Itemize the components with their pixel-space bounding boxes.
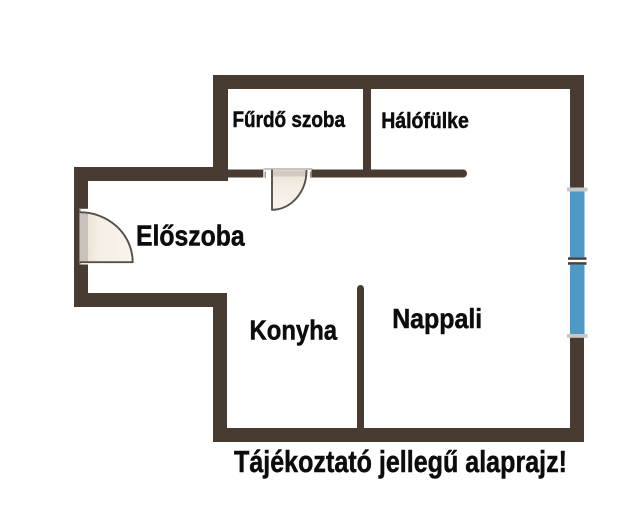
svg-text:Tájékoztató jellegű alaprajz!: Tájékoztató jellegű alaprajz! <box>234 444 567 479</box>
svg-text:Fűrdő szoba: Fűrdő szoba <box>233 107 346 132</box>
svg-text:Konyha: Konyha <box>250 314 338 345</box>
svg-text:Nappali: Nappali <box>392 303 482 334</box>
svg-text:Hálófülke: Hálófülke <box>381 108 469 133</box>
svg-text:Előszoba: Előszoba <box>136 220 245 252</box>
